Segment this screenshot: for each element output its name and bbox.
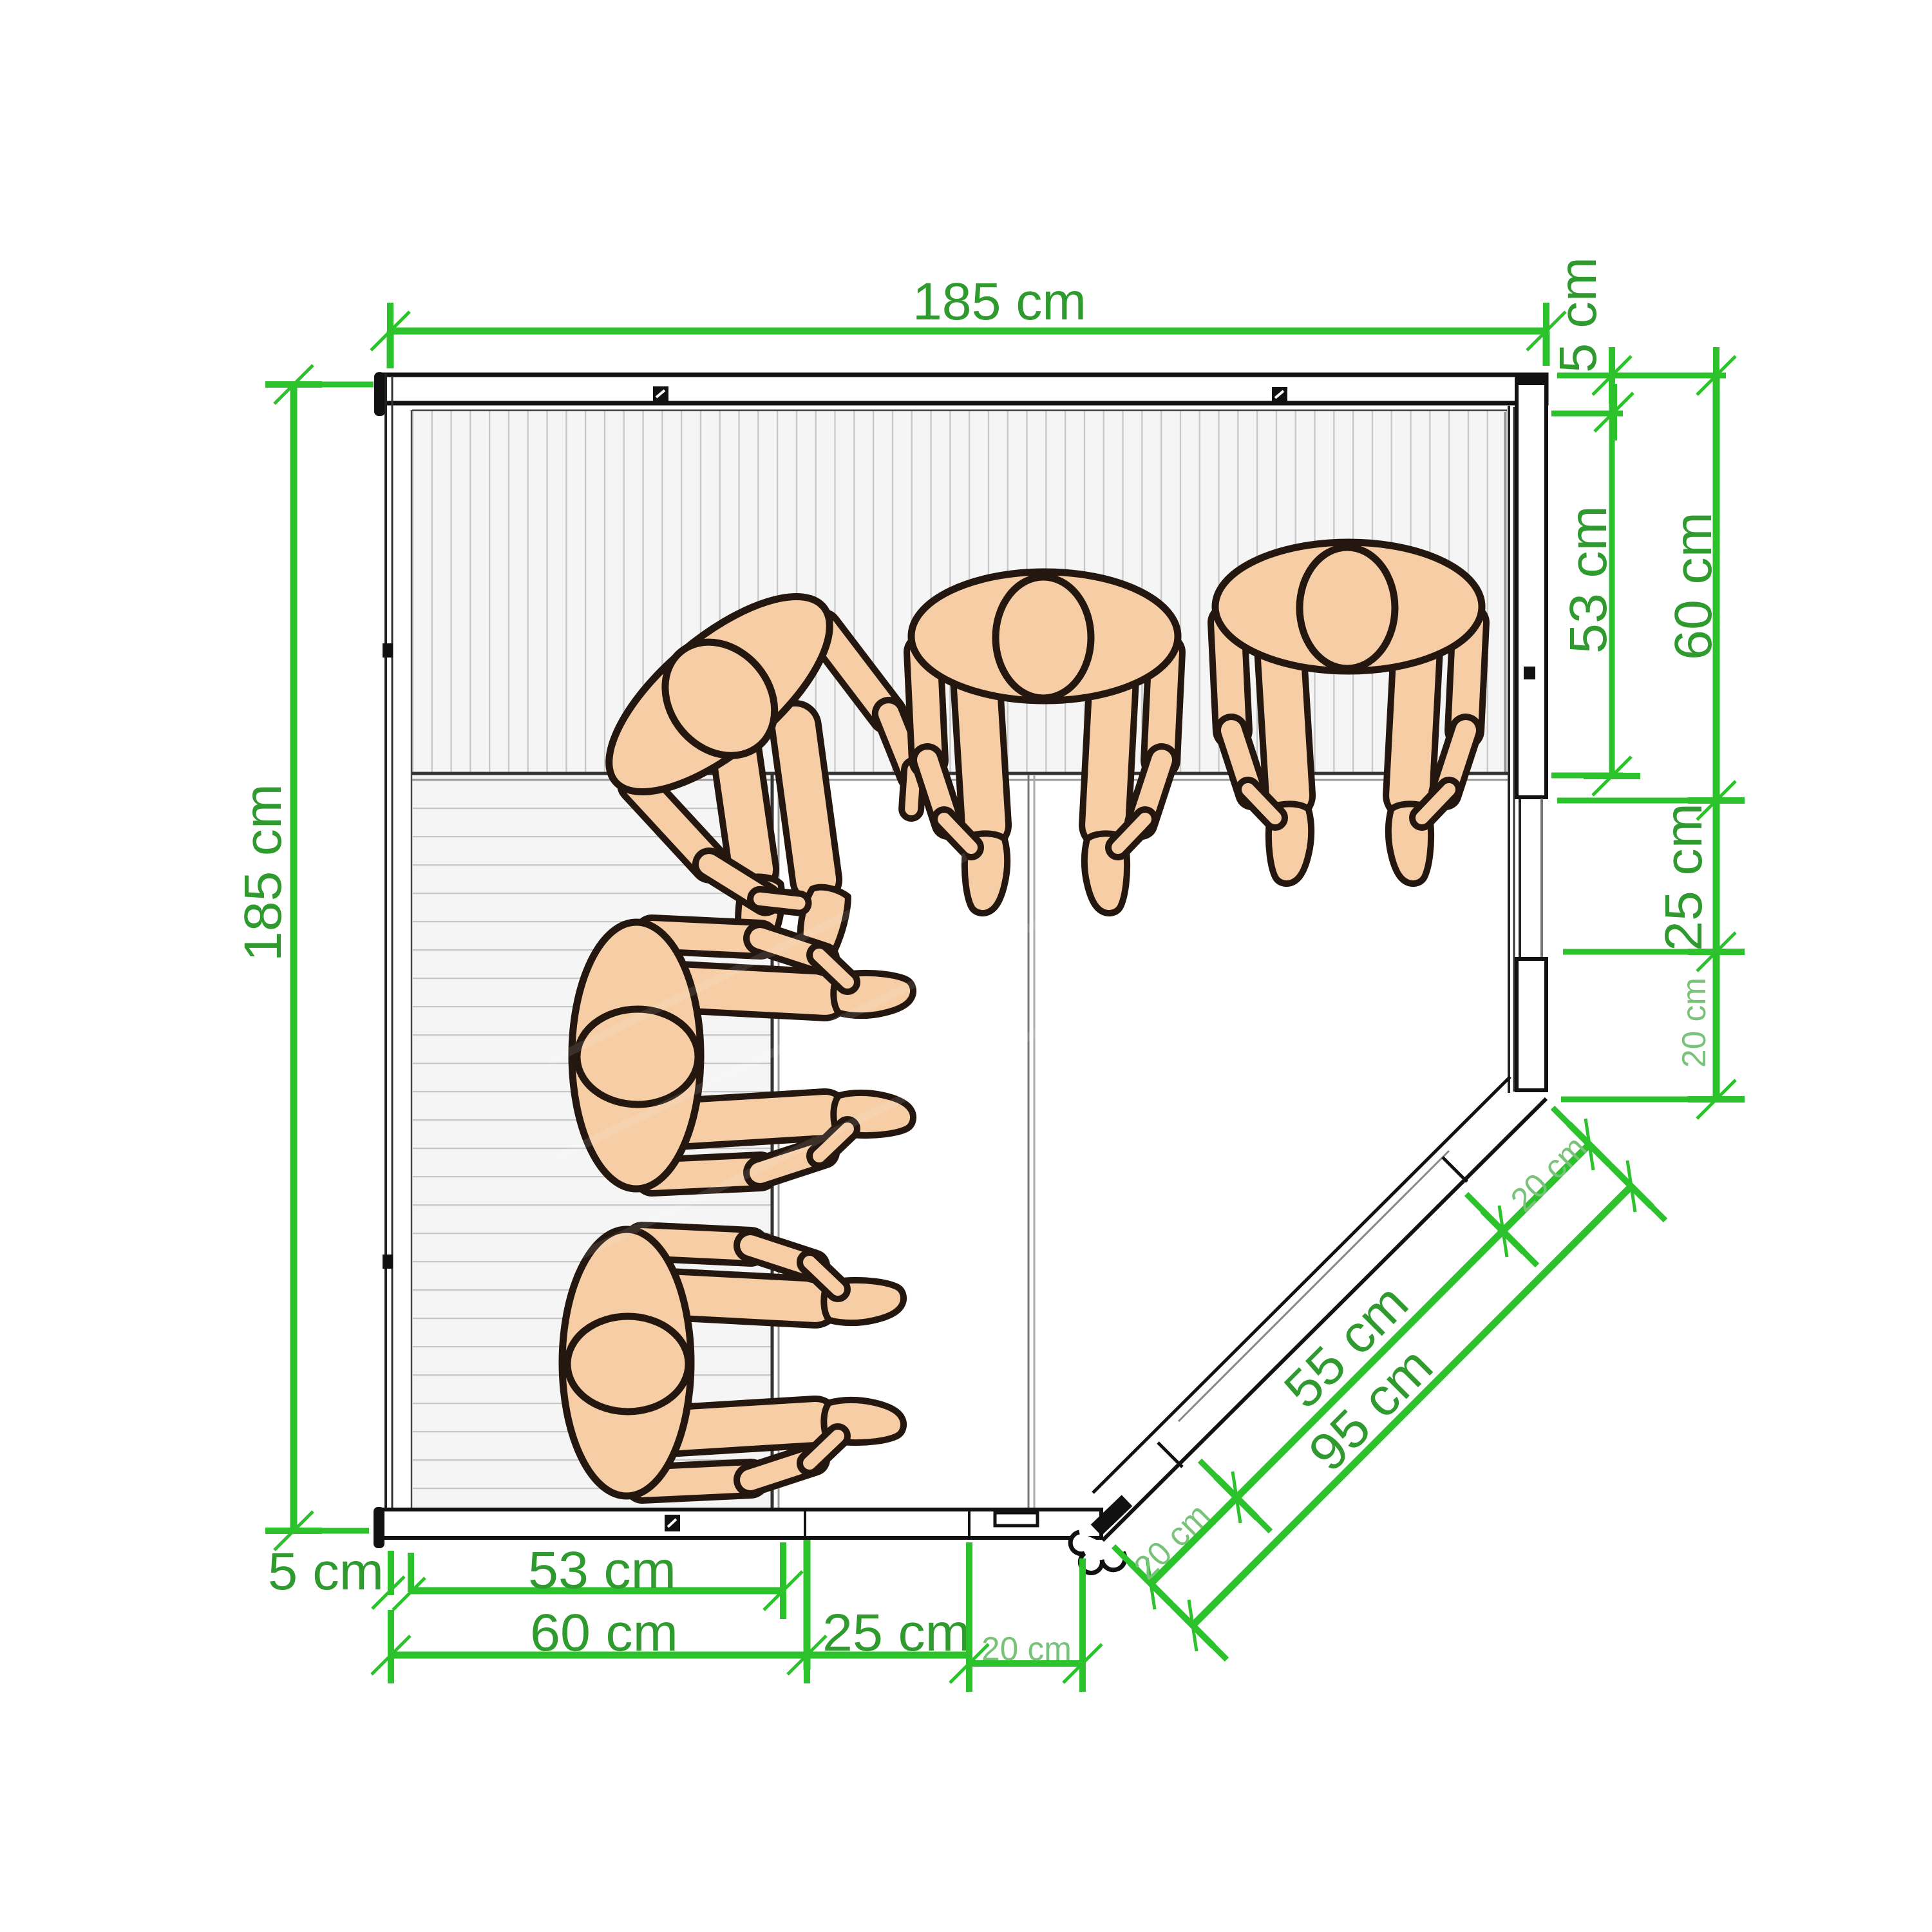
svg-text:60 cm: 60 cm: [1664, 512, 1723, 660]
svg-text:25 cm: 25 cm: [822, 1604, 971, 1662]
svg-text:185 cm: 185 cm: [913, 272, 1086, 331]
svg-text:60 cm: 60 cm: [530, 1604, 678, 1662]
svg-text:20 cm: 20 cm: [981, 1631, 1072, 1668]
svg-text:53 cm: 53 cm: [1559, 506, 1618, 654]
svg-text:5 cm: 5 cm: [268, 1542, 384, 1601]
svg-text:20 cm: 20 cm: [1676, 978, 1713, 1068]
svg-text:5 cm: 5 cm: [1549, 257, 1607, 373]
svg-text:53 cm: 53 cm: [528, 1541, 676, 1600]
svg-text:25 cm: 25 cm: [1654, 803, 1713, 951]
svg-text:185 cm: 185 cm: [234, 784, 292, 961]
